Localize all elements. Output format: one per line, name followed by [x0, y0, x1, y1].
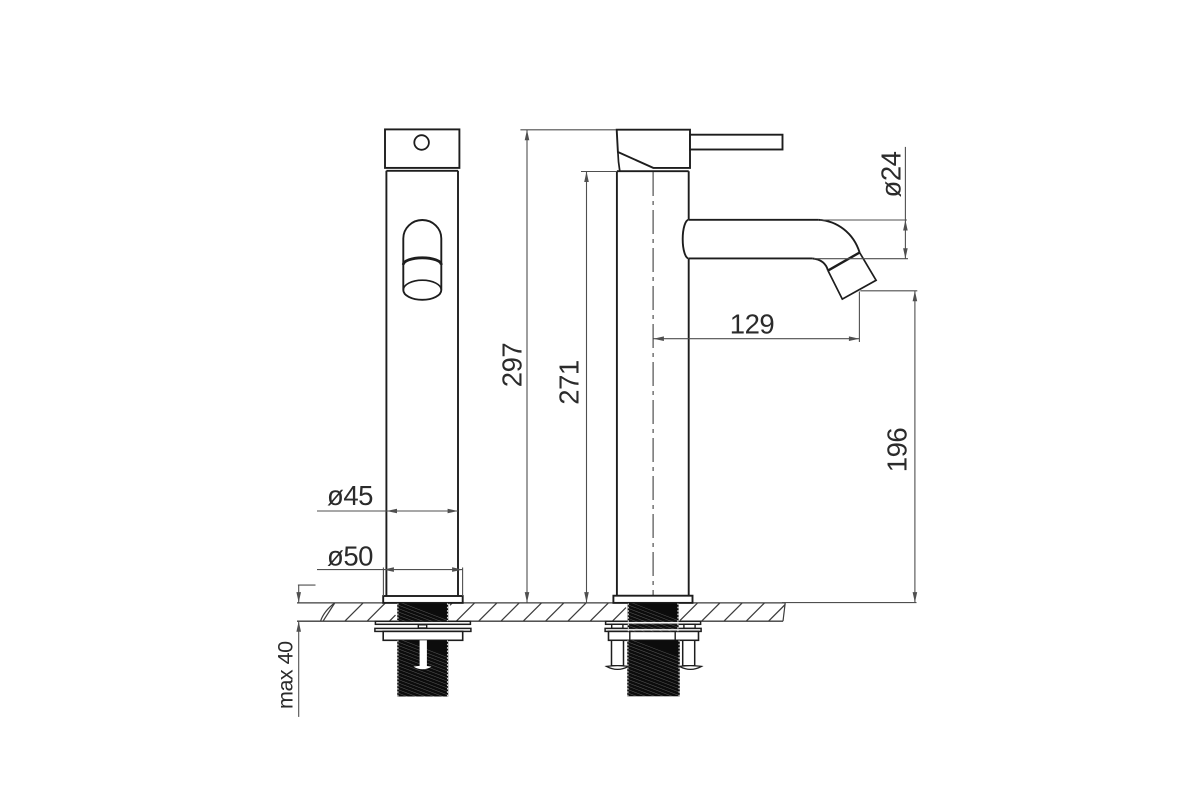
svg-text:ø24: ø24: [876, 151, 907, 197]
svg-text:297: 297: [496, 343, 527, 387]
svg-text:196: 196: [882, 428, 913, 473]
svg-text:ø50: ø50: [327, 541, 373, 572]
svg-text:129: 129: [730, 309, 774, 340]
svg-text:271: 271: [553, 360, 584, 404]
svg-text:ø45: ø45: [327, 480, 373, 511]
svg-text:max 40: max 40: [274, 641, 298, 709]
